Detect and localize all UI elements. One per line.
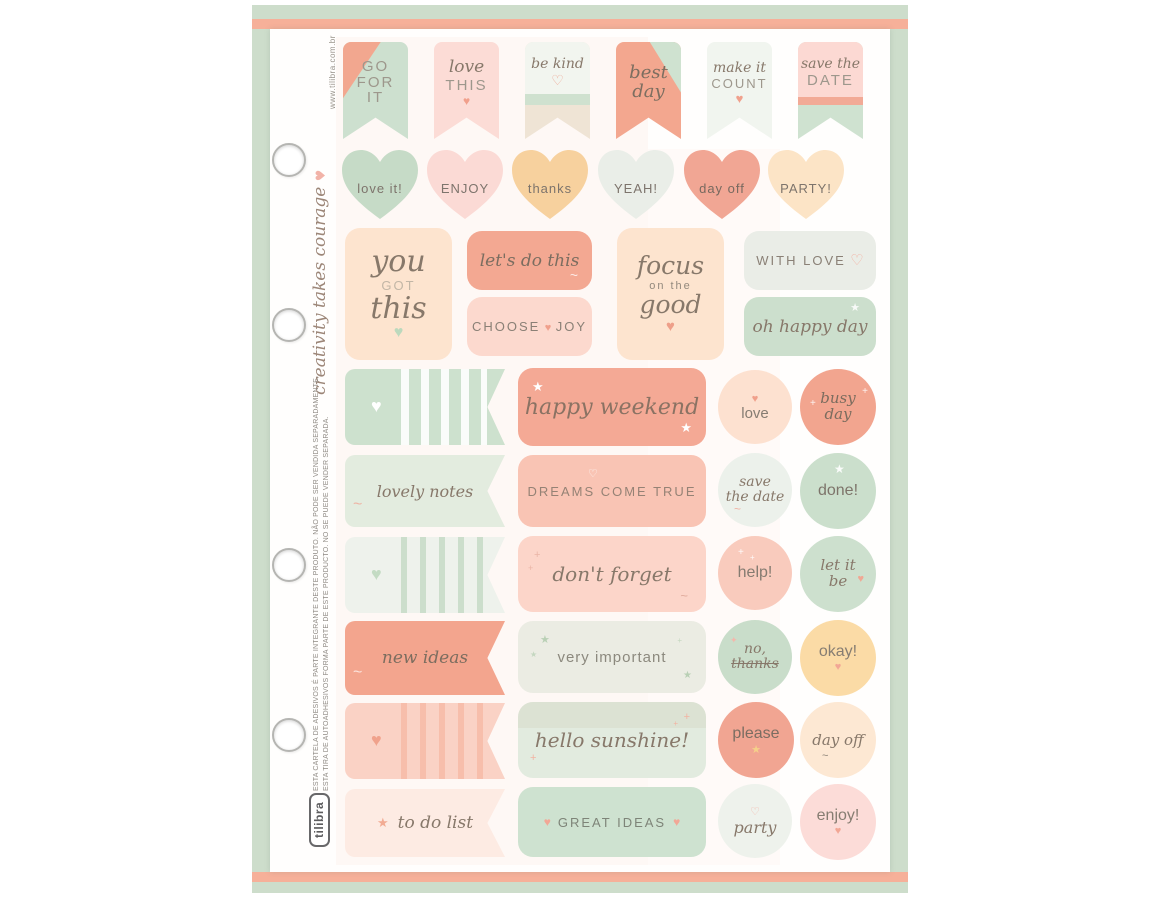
ribbon-stripes [401,537,487,613]
swash-icon: ~ [353,497,362,513]
sticker-ribbon-light-striped: ♥ [345,537,505,613]
legal-text: ESTA CARTELA DE ADESIVOS É PARTE INTEGRA… [312,376,332,791]
card-text: let's do this [480,251,580,271]
card-text: focus [637,253,704,279]
label-text: to do list [398,813,473,833]
flag-text: DATE [807,72,854,89]
product-photo-sticker-sheet: www.tilibra.com.br creativity takes cour… [0,0,1160,898]
circle-text: done! [818,482,858,500]
side-quote: creativity takes courage ♥ [310,170,330,395]
sticker-heart-enjoy: ENJOY [425,148,505,221]
star-icon: ★ [540,635,550,646]
ribbon-stripes [401,369,487,445]
heart-icon: ♥ [545,322,552,334]
sticker-with-love: WITH LOVE ♡ [744,231,876,290]
heart-outline-icon: ♡ [750,805,760,818]
heart-icon: ♥ [371,397,382,415]
sticker-ribbon-pink-striped: ♥ [345,703,505,779]
heart-label: day off [699,181,745,196]
swash-icon: ~ [822,751,828,762]
circle-text: day off [812,731,863,749]
swash-icon: ~ [353,665,362,681]
flag-text: IT [357,90,395,106]
sticker-ribbon-mint-striped: ♥ [345,369,505,445]
label-text: hello sunshine! [535,728,689,752]
heart-label: love it! [357,181,403,196]
flag-text: day [629,83,668,102]
circle-text: okay! [819,643,857,661]
sticker-heart-thanks: thanks [510,148,590,221]
circle-text: save [726,475,785,490]
heart-icon: ♥ [857,574,864,585]
sticker-circle-help: help! + + [718,536,792,610]
heart-outline-icon: ♡ [850,252,863,269]
flag-text: save the [801,56,860,72]
card-text: CHOOSE [472,319,540,334]
flag-text: THIS [445,77,487,94]
sparkle-icon: + [534,550,540,561]
card-text: JOY [556,319,587,334]
flag-band [525,94,590,105]
sticker-circle-busy-day: busy day + + [800,369,876,445]
card-text: you [371,246,425,278]
star-icon: ★ [683,671,692,681]
heart-icon: ♥ [673,815,680,829]
sticker-oh-happy-day: oh happy day ★ [744,297,876,356]
card-text: this [370,293,426,325]
sparkle-icon: + [528,564,533,573]
sticker-be-kind: be kind ♡ [525,42,590,139]
sticker-sheet: www.tilibra.com.br creativity takes cour… [270,29,890,872]
sparkle-icon: + [810,399,816,409]
sticker-great-ideas: ♥ GREAT IDEAS ♥ [518,787,706,857]
sticker-best-day: best day [616,42,681,139]
heart-label: thanks [528,181,572,196]
sticker-circle-let-it-be: let it be ♥ [800,536,876,612]
sticker-circle-day-off: day off ~ [800,702,876,778]
label-text: lovely notes [377,482,474,501]
star-icon: ★ [834,463,845,475]
label-text: don't forget [552,562,671,586]
star-icon: ★ [532,380,544,393]
label-text: new ideas [382,648,468,668]
brand-logo: tilibra [310,793,328,847]
flag-text: best [629,64,668,83]
sparkle-icon: + [530,753,536,764]
punch-hole [272,548,306,582]
ribbon-stripes [401,703,487,779]
heart-icon: ♥ [736,91,744,106]
circle-text: love [741,405,769,422]
star-icon: ★ [530,651,537,659]
sticker-lovely-notes: lovely notes ~ [345,455,505,527]
sparkle-icon: + [684,712,690,723]
label-text: GREAT IDEAS [558,815,666,830]
sticker-save-the-date: save the DATE [798,42,863,139]
punch-hole [272,143,306,177]
sticker-dreams-come-true: DREAMS COME TRUE ♡ [518,455,706,527]
heart-outline-icon: ♡ [551,72,564,89]
heart-icon: ♥ [752,393,759,405]
side-quote-text: creativity takes courage [310,187,330,395]
legal-text-es: ESTA TIRA DE AUTOADHESIVOS FORMA PARTE D… [322,376,332,791]
heart-icon: ♥ [371,731,382,749]
backdrop-mint: www.tilibra.com.br creativity takes cour… [252,5,908,893]
circle-text: enjoy! [817,807,860,825]
heart-icon: ♥ [463,94,470,108]
sparkle-icon: + [862,387,868,397]
sticker-lets-do-this: let's do this ~ [467,231,592,290]
punch-hole [272,308,306,342]
sticker-circle-enjoy: enjoy! ♥ [800,784,876,860]
star-icon: ★ [751,743,761,756]
circle-text: please [732,725,779,743]
sparkle-icon: + [750,554,755,562]
brand-logo-text: tilibra [309,793,330,847]
sticker-heart-love-it: love it! [340,148,420,221]
heart-icon: ♥ [666,318,675,335]
label-text: very important [557,649,666,666]
sticker-circle-done: ★ done! [800,453,876,529]
flag-text: COUNT [711,76,767,91]
flag-text: make it [713,60,766,76]
sticker-choose-joy: CHOOSE ♥ JOY [467,297,592,356]
star-icon: ★ [377,815,389,831]
sticker-circle-please: please ★ [718,702,794,778]
heart-icon: ♥ [835,825,842,837]
sticker-circle-love: ♥ love [718,370,792,444]
sticker-focus-on-the-good: focus on the good ♥ [617,228,724,360]
heart-label: PARTY! [780,181,832,196]
swash-icon: ~ [734,503,741,515]
sticker-circle-party: ♡ party [718,784,792,858]
heart-icon: ♥ [544,815,551,829]
bottom-coral-stripe [252,872,908,882]
top-coral-stripe [252,19,908,29]
circle-text: be [820,574,855,590]
sticker-dont-forget: don't forget + + ~ [518,536,706,612]
sticker-new-ideas: new ideas ~ [345,621,505,695]
sparkle-icon: ✦ [730,636,738,645]
sticker-heart-party: PARTY! [766,148,846,221]
flag-band [798,97,863,105]
sticker-heart-yeah: YEAH! [596,148,676,221]
sticker-circle-save-the-date: save the date ~ [718,453,792,527]
circle-text: thanks [731,657,779,672]
flag-text: GO [357,59,395,75]
flag-text: be kind [531,56,584,72]
flag-text: FOR [357,75,395,91]
circle-text: day [820,407,855,423]
sticker-you-got-this: you GOT this ♥ [345,228,452,360]
label-text: happy weekend [525,395,699,420]
heart-outline-icon: ♡ [588,469,598,480]
sticker-make-it-count: make it COUNT ♥ [707,42,772,139]
heart-icon: ♥ [835,661,842,673]
star-icon: ★ [850,303,860,314]
sticker-very-important: very important ★ ★ ★ + [518,621,706,693]
sticker-circle-okay: okay! ♥ [800,620,876,696]
heart-icon: ♥ [394,324,404,342]
sticker-go-for-it: GO FOR IT [343,42,408,139]
punch-hole [272,718,306,752]
label-text: DREAMS COME TRUE [528,484,697,499]
card-text: good [639,292,701,318]
flag-text: love [449,57,484,77]
sparkle-icon: + [677,637,682,645]
legal-text-pt: ESTA CARTELA DE ADESIVOS É PARTE INTEGRA… [312,376,322,791]
circle-text: party [734,818,777,837]
sticker-circle-no-thanks: no, thanks ✦ [718,620,792,694]
sticker-heart-day-off: day off [682,148,762,221]
heart-label: YEAH! [614,181,658,196]
star-icon: ★ [680,421,692,434]
sticker-love-this: love THIS ♥ [434,42,499,139]
heart-label: ENJOY [441,181,489,196]
circle-text: no, [731,642,779,657]
heart-icon: ♥ [371,565,382,583]
sticker-happy-weekend: happy weekend ★ ★ [518,368,706,446]
circle-text: help! [738,564,773,582]
website-url: www.tilibra.com.br [328,35,337,109]
heart-icon: ♥ [314,170,329,182]
card-text: WITH LOVE [756,253,846,268]
sticker-to-do-list: ★ to do list [345,789,505,857]
swash-icon: ~ [570,268,578,282]
sparkle-icon: + [738,548,744,558]
card-text: oh happy day [752,317,867,337]
swash-heart-icon: ~ [680,589,688,602]
sticker-hello-sunshine: hello sunshine! + + + [518,702,706,778]
sparkle-icon: + [673,720,678,728]
